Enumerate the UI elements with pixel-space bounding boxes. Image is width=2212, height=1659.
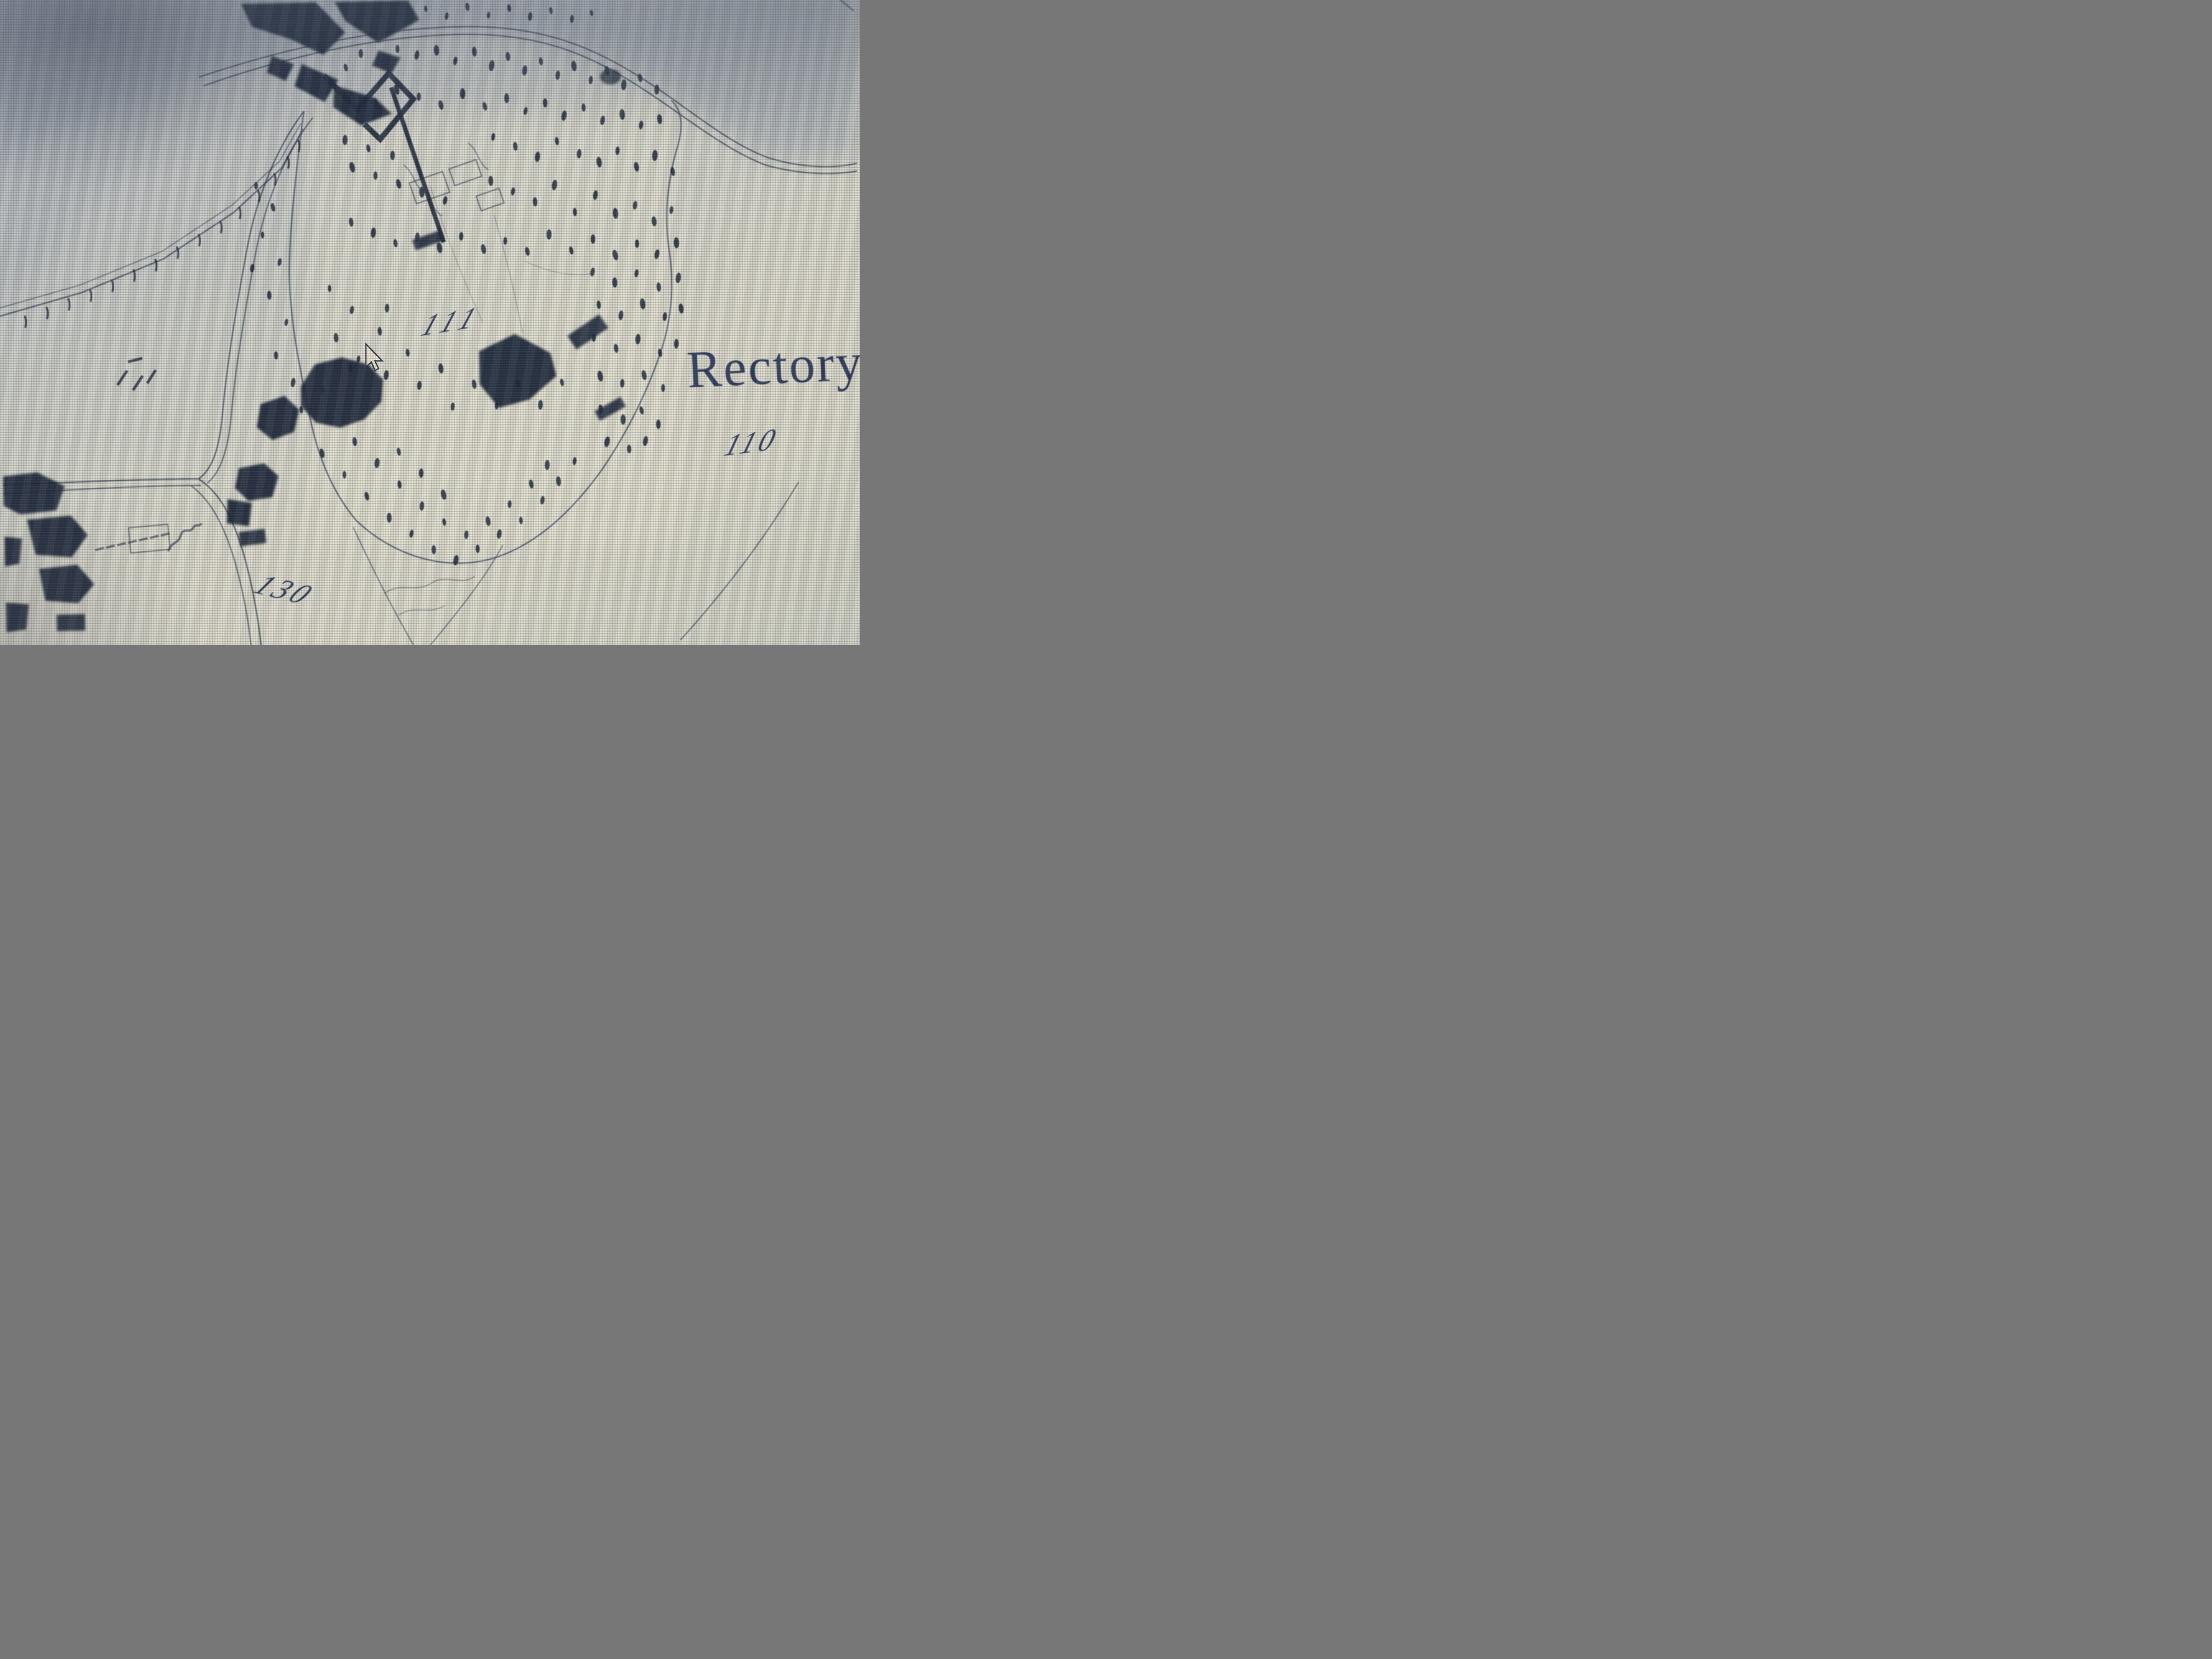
field-mark [133,376,143,390]
hedgerow-tree [199,234,200,246]
field-mark [147,370,156,383]
tree-symbol [460,88,465,99]
hedgerow-tree [274,173,275,185]
hedgerow-tree [68,298,70,311]
tree-symbol [396,45,400,53]
footpath [399,606,445,616]
tree-symbol [539,57,544,65]
tree-symbol [374,171,378,179]
tone-wash [303,105,685,551]
pond-blob [256,396,300,441]
pond-blob [234,463,279,501]
tree-symbol [453,57,458,65]
hamlet-building [39,565,94,604]
tick-mark [760,216,761,234]
stream-squiggle [168,523,202,551]
tree-symbol [267,291,272,300]
tick-mark [786,193,786,212]
map-label-rectory: Rectory [686,332,860,399]
tree-symbol [254,182,258,190]
village-building [294,63,338,103]
hamlet-building [27,515,88,558]
tree-symbol [414,50,420,60]
hedgerow-tree [25,315,26,328]
hedgerow-tree [239,207,241,219]
hamlet-building [4,537,22,567]
field-mark [128,358,142,362]
tree-symbol [591,234,595,244]
tree-symbol [453,555,459,566]
tree-symbol [522,65,528,76]
field-mark [117,371,128,385]
tree-symbol [343,63,348,71]
hedgerow-tree [111,280,113,292]
map-label-num-110: 110 [720,422,782,463]
hedgerow-tree [133,269,135,281]
tree-symbol [261,232,264,239]
outbuilding-filled [239,529,267,546]
hedgerow-tree [177,247,178,259]
hamlet-building [6,602,30,632]
hedgerow-tree [298,140,300,152]
tree-symbol [472,47,477,57]
tone-washes [0,0,860,557]
tree-symbol [488,60,495,71]
boundary-dash [161,533,170,535]
hedgerow-tree [46,307,48,319]
pond-blob [227,499,252,527]
outbuilding-filled [57,614,86,631]
hedgerow-tree [220,221,222,233]
tree-symbol [438,100,444,110]
tree-symbol [620,414,625,425]
tree-symbol [270,202,276,212]
outbuilding-outline [128,524,170,553]
map-label-num-130: 130 [247,570,321,611]
boundary-dash [106,545,115,548]
hamlet-building [3,472,66,515]
tree-symbol [290,377,296,387]
hedgerow-tree [258,190,259,202]
tree-symbol [274,351,278,359]
tree-symbol [359,49,363,58]
hedgerow-tree [155,259,156,271]
tree-symbol [417,93,421,101]
map-content: Rectory110130111 [0,0,860,645]
tree-symbol [342,471,346,478]
tree-symbol [555,70,561,80]
wood-pond [600,69,621,85]
boundary-dash [150,535,159,538]
tree-symbol [620,79,627,90]
tone-wash [0,76,204,317]
hedgerow-tree [287,156,289,168]
hedgerow-tree [90,290,92,302]
road-line [428,545,505,645]
tree-symbol [505,52,510,61]
tree-symbol [277,258,283,266]
boundary-dash [139,538,148,540]
boundary-dash [117,543,126,545]
road-line [677,482,802,640]
screen-photo: Rectory110130111 [0,0,860,645]
tree-symbol [504,93,509,103]
boundary-dash [95,548,104,550]
tree-symbol [433,45,439,56]
tree-symbol [588,76,593,84]
map-canvas[interactable]: Rectory110130111 [0,0,860,645]
footpath [384,576,476,593]
tree-symbol [571,60,577,71]
tree-symbol [284,319,289,326]
tree-symbol [543,98,548,108]
